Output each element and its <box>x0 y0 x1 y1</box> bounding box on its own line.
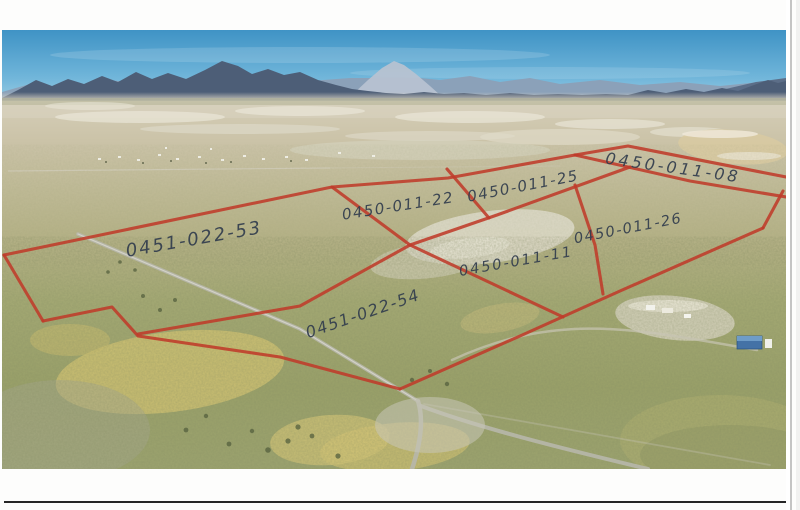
aerial-photo-canvas: 0451-022-53 0450-011-22 0450-011-25 0450… <box>2 30 786 469</box>
scanned-page: 0451-022-53 0450-011-22 0450-011-25 0450… <box>0 0 800 510</box>
scan-far-edge <box>796 0 800 510</box>
page-bottom-rule <box>4 501 786 503</box>
scan-edge-shadow <box>790 0 792 510</box>
aerial-photo: 0451-022-53 0450-011-22 0450-011-25 0450… <box>2 30 786 469</box>
road-junction-pad <box>375 397 485 453</box>
